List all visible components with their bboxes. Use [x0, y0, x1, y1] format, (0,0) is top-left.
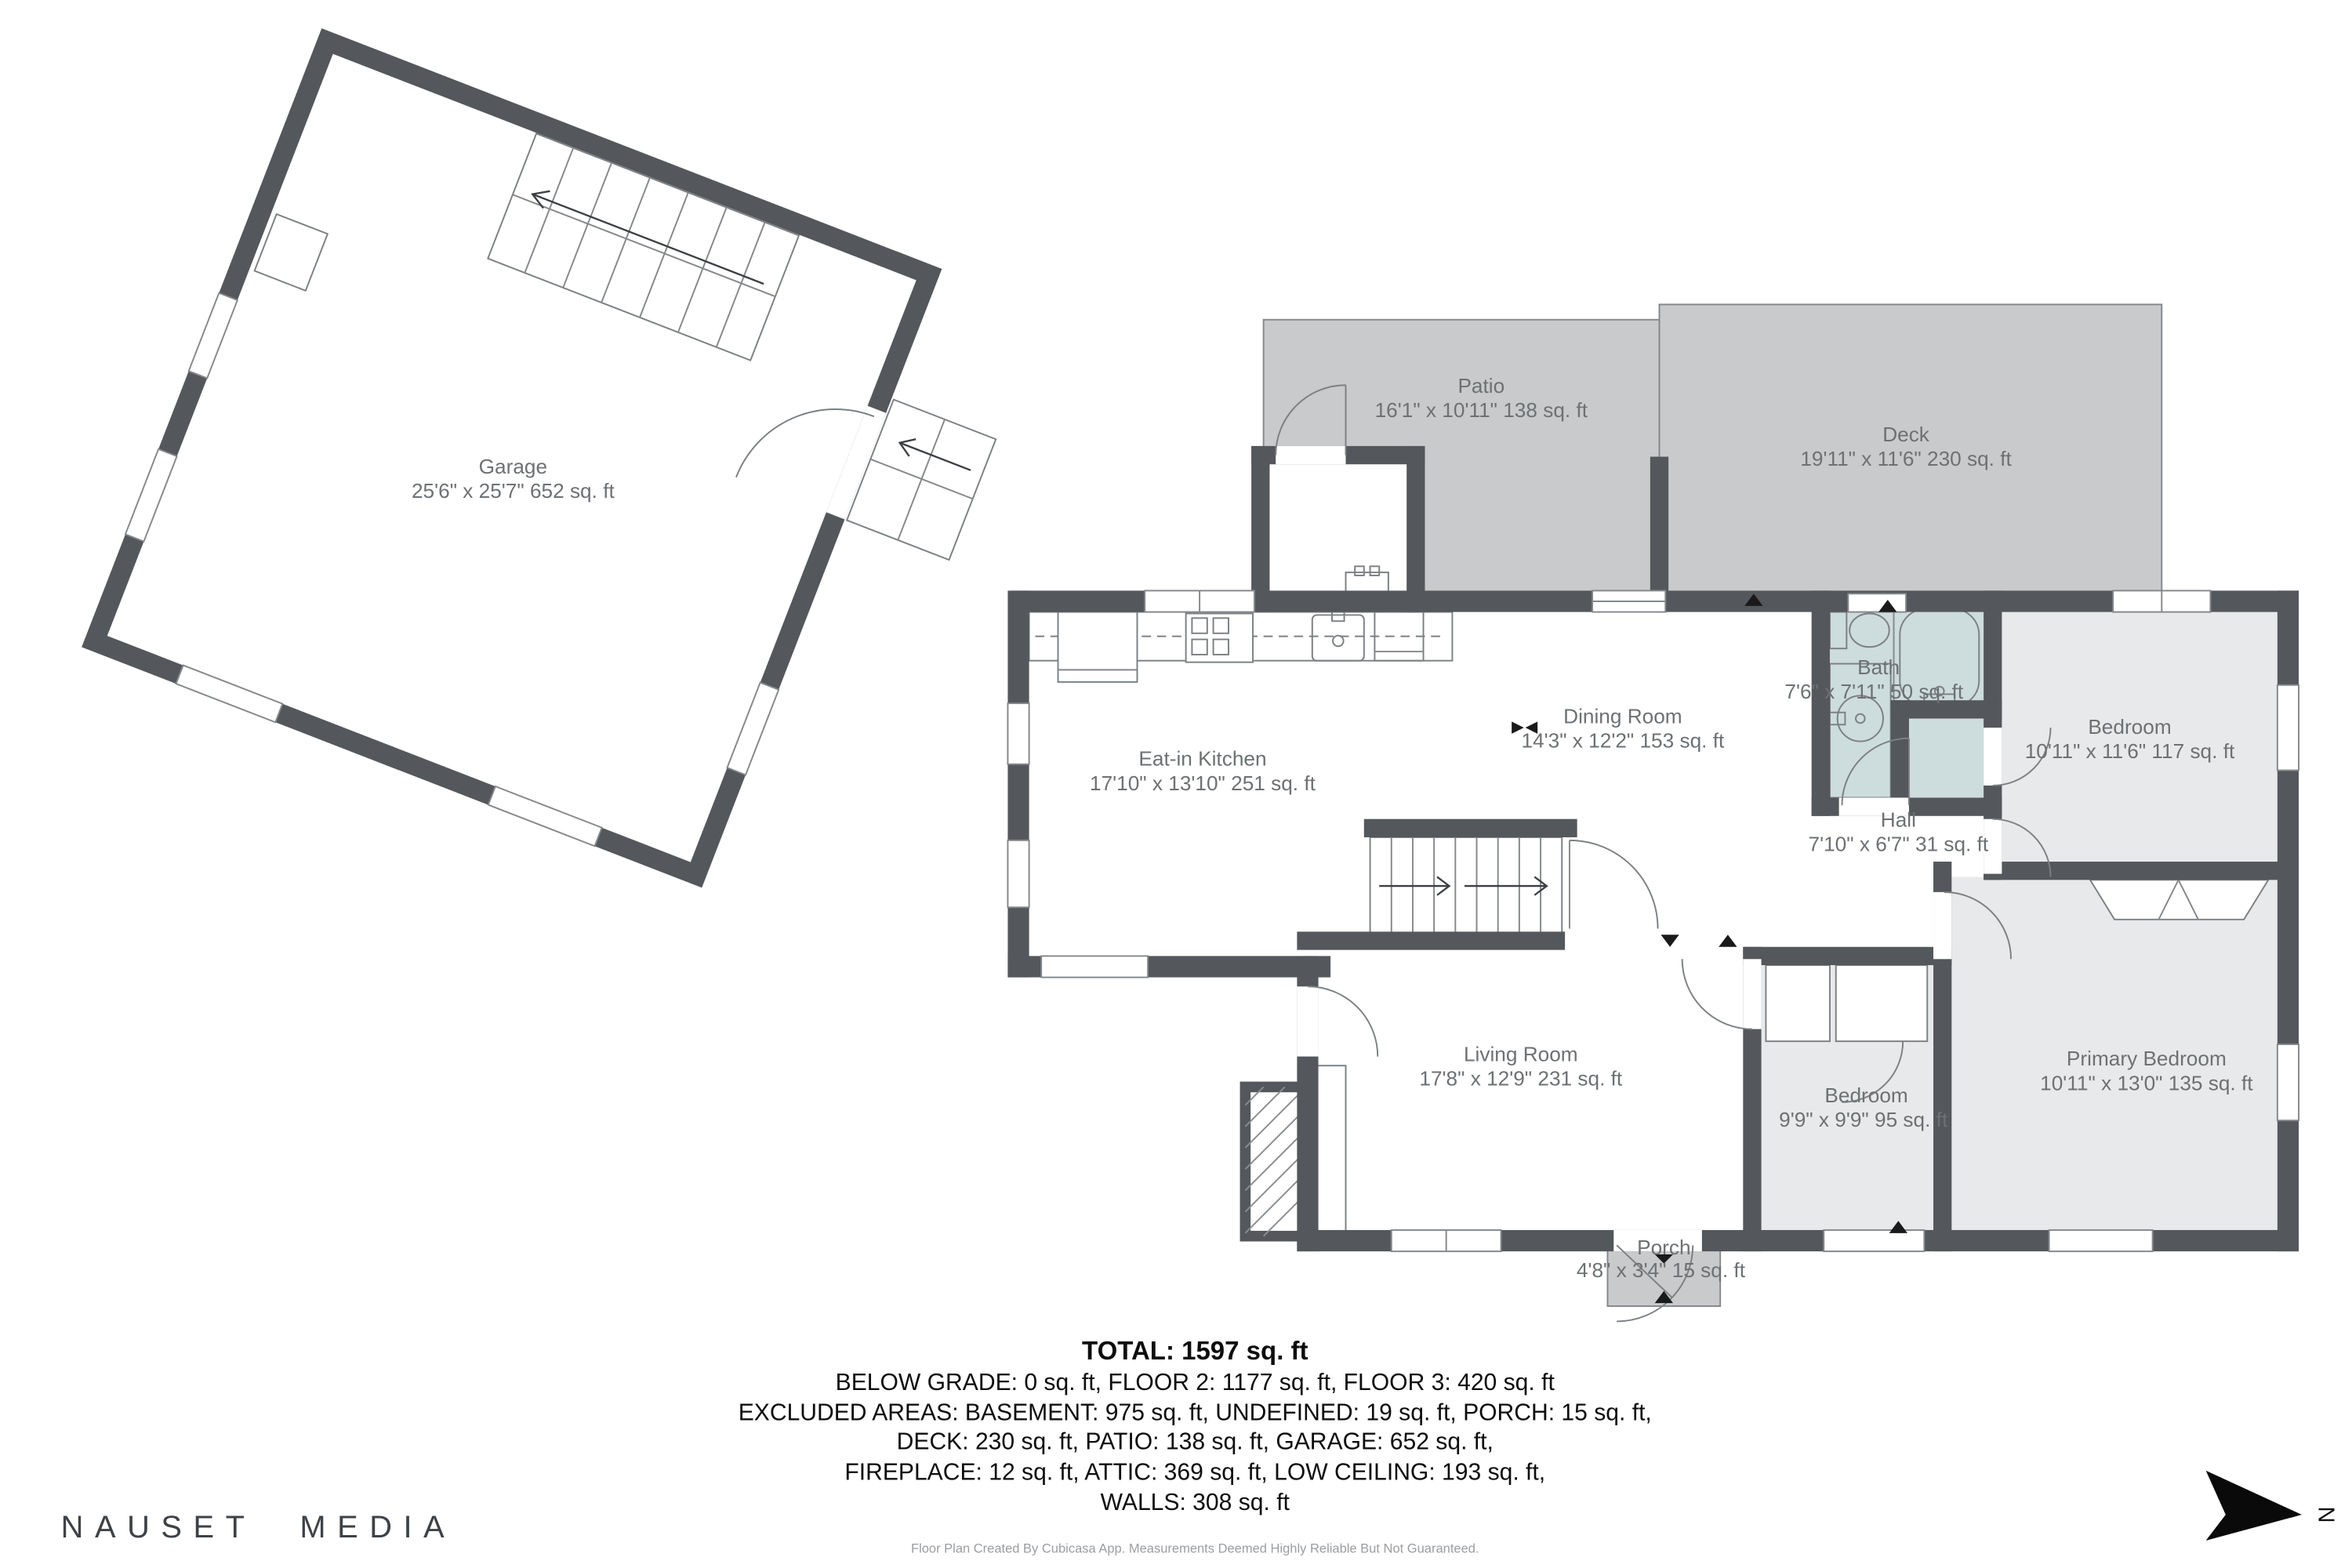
summary-line-3: DECK: 230 sq. ft, PATIO: 138 sq. ft, GAR… — [897, 1429, 1494, 1455]
hall-label: Hall — [1881, 808, 1916, 831]
garage-dims: 25'6" x 25'7" 652 sq. ft — [412, 479, 615, 503]
total-area-text: TOTAL: 1597 sq. ft — [1082, 1336, 1308, 1365]
bedroom-bottom-label: Bedroom — [1824, 1083, 1907, 1107]
porch-dims: 4'8" x 3'4" 15 sq. ft — [1577, 1258, 1746, 1282]
compass-north-label: N — [2313, 1507, 2338, 1523]
bedroom-top-right-dims: 10'11" x 11'6" 117 sq. ft — [2025, 739, 2235, 763]
primary-bedroom-dims: 10'11" x 13'0" 135 sq. ft — [2040, 1071, 2253, 1094]
north-compass-icon: N — [2206, 1471, 2339, 1541]
deck-dims: 19'11" x 11'6" 230 sq. ft — [1800, 447, 2012, 470]
bay-window-icon — [2090, 880, 2268, 919]
bath-dims: 7'6" x 7'11" 50 sq. ft — [1784, 680, 1963, 703]
living-room-dims: 17'8" x 12'9" 231 sq. ft — [1419, 1066, 1623, 1090]
hall-dims: 7'10" x 6'7" 31 sq. ft — [1809, 832, 1989, 855]
patio-dims: 16'1" x 10'11" 138 sq. ft — [1375, 398, 1588, 422]
page: { "rooms": { "garage": {"name": "Garage"… — [0, 0, 2352, 1568]
summary-line-1: BELOW GRADE: 0 sq. ft, FLOOR 2: 1177 sq.… — [836, 1370, 1555, 1396]
kitchen-dims: 17'10" x 13'10" 251 sq. ft — [1090, 771, 1316, 795]
summary-line-2: EXCLUDED AREAS: BASEMENT: 975 sq. ft, UN… — [739, 1400, 1652, 1426]
dining-room-dims: 14'3" x 12'2" 153 sq. ft — [1522, 728, 1726, 752]
deck-label: Deck — [1882, 423, 1930, 446]
summary-line-4: FIREPLACE: 12 sq. ft, ATTIC: 369 sq. ft,… — [844, 1459, 1545, 1485]
closet — [1766, 965, 1830, 1041]
company-logo: NAUSET MEDIA — [61, 1510, 456, 1544]
bath-label: Bath — [1857, 655, 1900, 679]
summary-line-5: WALLS: 308 sq. ft — [1101, 1490, 1290, 1515]
primary-bedroom-label: Primary Bedroom — [2067, 1047, 2227, 1070]
closet — [1836, 965, 1928, 1041]
bedroom-bottom-dims: 9'9" x 9'9" 95 sq. ft — [1779, 1108, 1948, 1131]
living-room-label: Living Room — [1464, 1042, 1578, 1065]
disclaimer-text: Floor Plan Created By Cubicasa App. Meas… — [911, 1542, 1479, 1556]
dining-room-label: Dining Room — [1563, 704, 1682, 728]
floor-plan: Garage 25'6" x 25'7" 652 sq. ft Patio 16… — [0, 0, 2352, 1568]
garage-label: Garage — [479, 455, 547, 478]
bedroom-top-right-label: Bedroom — [2088, 715, 2171, 739]
kitchen-label: Eat-in Kitchen — [1138, 747, 1266, 771]
porch-label: Porch — [1637, 1236, 1690, 1259]
patio-label: Patio — [1457, 374, 1504, 397]
area-summary: TOTAL: 1597 sq. ft BELOW GRADE: 0 sq. ft… — [739, 1336, 1652, 1515]
